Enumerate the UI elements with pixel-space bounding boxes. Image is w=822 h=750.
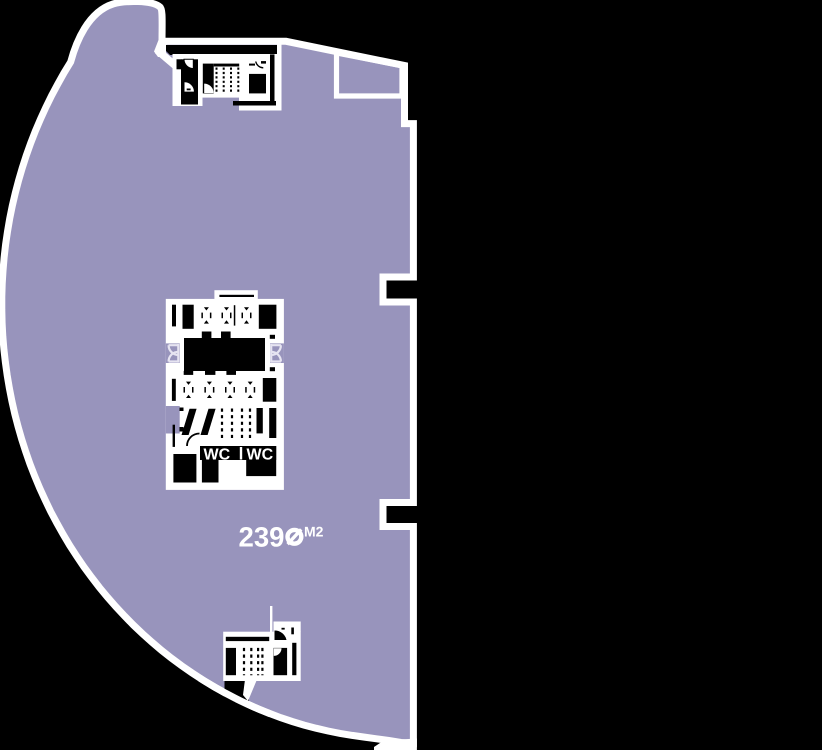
svg-text:WC: WC bbox=[247, 447, 274, 464]
svg-text:239: 239 bbox=[239, 522, 285, 553]
svg-text:WC: WC bbox=[204, 447, 231, 464]
svg-text:M2: M2 bbox=[304, 524, 324, 540]
